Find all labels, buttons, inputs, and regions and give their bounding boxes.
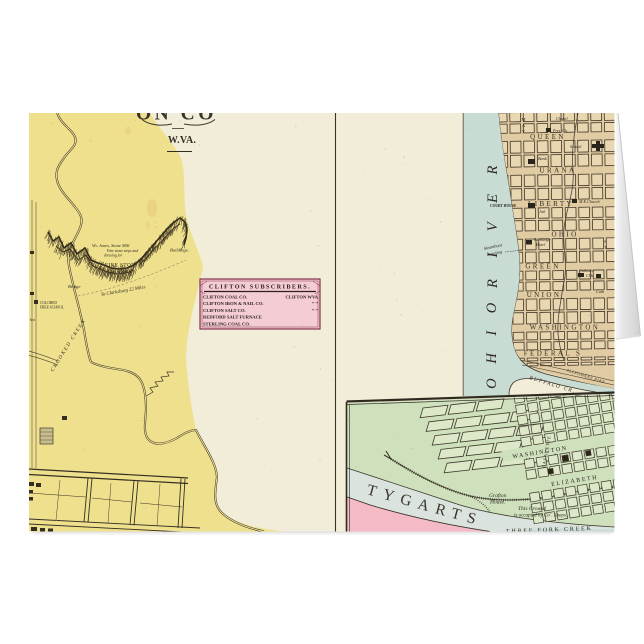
svg-text:R: R <box>485 165 501 175</box>
svg-text:FREE SCHOOL: FREE SCHOOL <box>40 306 64 310</box>
svg-text:M.E.Church: M.E.Church <box>578 199 600 204</box>
svg-text:CLIFTON SUBSCRIBERS.: CLIFTON SUBSCRIBERS. <box>209 284 311 291</box>
svg-text:ON CO: ON CO <box>136 104 217 125</box>
svg-text:Chapel: Chapel <box>556 116 568 121</box>
svg-text:is occupied by Co’. Shops.: is occupied by Co’. Shops. <box>514 514 567 519</box>
svg-text:UNION: UNION <box>527 291 562 299</box>
svg-text:REDFORD SALT FURNACE: REDFORD SALT FURNACE <box>203 315 262 320</box>
svg-text:This Ground: This Ground <box>518 506 546 512</box>
svg-text:House.: House. <box>489 500 505 506</box>
svg-text:COLORED: COLORED <box>40 301 57 305</box>
svg-text:Jail: Jail <box>539 209 546 214</box>
svg-text:QUARRY: QUARRY <box>108 269 133 275</box>
svg-text:dressing for: dressing for <box>104 254 123 258</box>
svg-text:CLIFTON COAL CO.: CLIFTON COAL CO. <box>203 294 247 299</box>
svg-text:Bridge: Bridge <box>68 284 81 289</box>
svg-text:Buildings.: Buildings. <box>170 248 189 253</box>
svg-text:FEDERAL S: FEDERAL S <box>524 350 582 358</box>
svg-text:WASHINGTON: WASHINGTON <box>530 324 601 332</box>
svg-text:W.VA.: W.VA. <box>168 135 197 146</box>
svg-text:Cath: Cath <box>596 289 604 294</box>
svg-text:CLIFTON WVA: CLIFTON WVA <box>285 294 318 299</box>
svg-text:URANA: URANA <box>540 167 577 175</box>
svg-text:QUEEN: QUEEN <box>530 133 566 141</box>
svg-text:R: R <box>485 279 501 289</box>
svg-text:Chh.: Chh. <box>586 273 594 278</box>
svg-text:O: O <box>484 302 500 313</box>
svg-text:E: E <box>485 194 501 204</box>
svg-text:M: M <box>521 117 525 122</box>
svg-text:Hotel: Hotel <box>535 242 546 247</box>
svg-text:’’ ’’: ’’ ’’ <box>312 301 319 306</box>
svg-text:Bank: Bank <box>538 156 547 161</box>
svg-text:O: O <box>484 378 500 389</box>
svg-text:Grafton: Grafton <box>489 492 507 499</box>
svg-text:Pres. Ch.: Pres. Ch. <box>552 128 568 133</box>
svg-text:OHIO: OHIO <box>551 231 578 239</box>
svg-text:GREEN: GREEN <box>525 263 560 271</box>
svg-text:CLIFTON IRON & NAIL CO.: CLIFTON IRON & NAIL CO. <box>203 301 264 306</box>
svg-text:Fine stone steps and: Fine stone steps and <box>106 249 138 253</box>
svg-text:H: H <box>484 352 500 365</box>
svg-text:CLIFTON SALT CO.: CLIFTON SALT CO. <box>203 308 246 313</box>
svg-text:STERLING COAL CO.: STERLING COAL CO. <box>203 322 250 327</box>
svg-text:T: T <box>604 245 607 250</box>
svg-text:COURT HOUSE: COURT HOUSE <box>490 204 517 208</box>
svg-text:’’ ’’: ’’ ’’ <box>312 308 319 313</box>
svg-text:FIRE STON: FIRE STON <box>105 263 136 269</box>
svg-text:School: School <box>570 144 582 149</box>
